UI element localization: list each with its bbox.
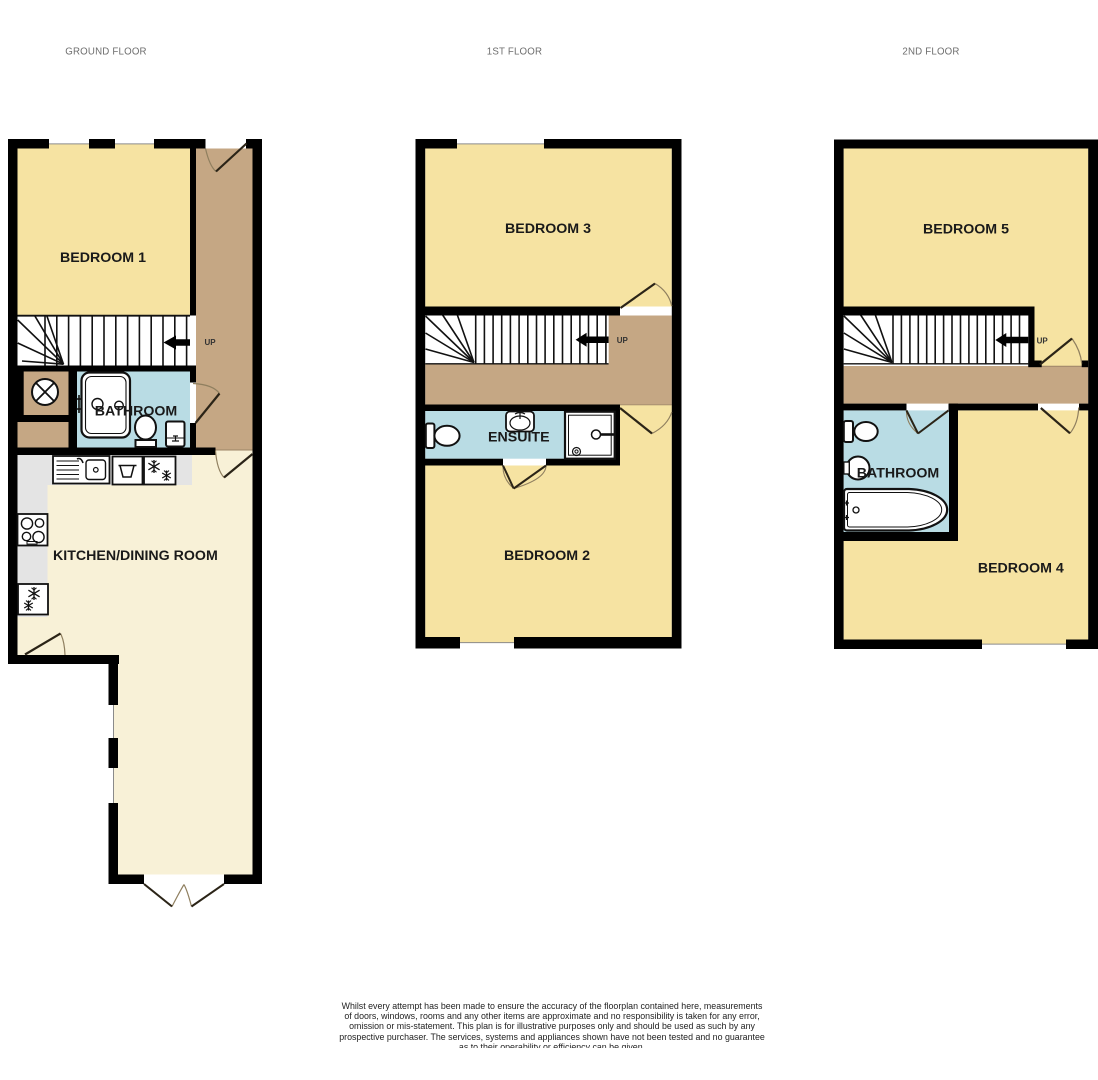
svg-text:GROUND FLOOR: GROUND FLOOR [65,47,147,58]
svg-text:BEDROOM 1: BEDROOM 1 [60,250,146,266]
svg-text:BATHROOM: BATHROOM [857,466,940,482]
svg-text:2ND FLOOR: 2ND FLOOR [902,47,959,58]
svg-text:1ST FLOOR: 1ST FLOOR [487,47,542,58]
svg-text:BEDROOM 4: BEDROOM 4 [978,561,1064,577]
svg-text:BEDROOM 3: BEDROOM 3 [505,221,591,237]
svg-text:UP: UP [617,336,629,345]
svg-text:ENSUITE: ENSUITE [488,430,550,446]
svg-text:BEDROOM 2: BEDROOM 2 [504,548,590,564]
svg-text:BATHROOM: BATHROOM [95,404,178,420]
svg-text:BEDROOM 5: BEDROOM 5 [923,222,1009,238]
svg-text:UP: UP [1037,337,1049,346]
svg-text:KITCHEN/DINING ROOM: KITCHEN/DINING ROOM [53,548,218,564]
svg-text:UP: UP [205,338,217,347]
